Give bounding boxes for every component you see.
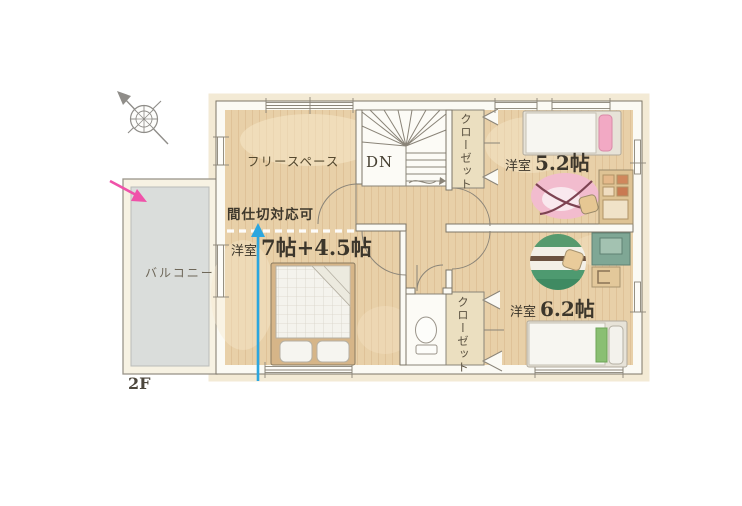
toilet-icon	[416, 317, 437, 343]
partition-note-label: 間仕切対応可	[227, 203, 314, 223]
bedroom-62-size: 6.2帖	[540, 293, 595, 322]
compass-icon	[117, 91, 168, 144]
stairs-down-label: DN	[366, 153, 393, 171]
stairwell	[362, 110, 446, 186]
bedroom-52-label: 洋室 5.2帖	[505, 147, 590, 176]
master-bedroom-name: 洋室	[231, 240, 257, 259]
floor-plan-page: フリースペース 間仕切対応可 洋室 7帖+4.5帖 洋室 5.2帖 洋室 6.2…	[0, 0, 742, 506]
bedroom-62-label: 洋室 6.2帖	[510, 293, 595, 322]
furniture-bed-62	[527, 321, 627, 367]
master-bedroom-label: 洋室 7帖+4.5帖	[231, 232, 372, 262]
bedroom-52-size: 5.2帖	[535, 147, 590, 176]
furniture-master-bed	[271, 263, 355, 365]
closet-south-label: クローゼット	[455, 296, 471, 374]
bedroom-52-name: 洋室	[505, 155, 531, 174]
balcony-label: バルコニー	[145, 264, 215, 281]
floor-number-label: 2F	[128, 374, 151, 393]
closet-north-label: クローゼット	[458, 113, 474, 191]
master-bedroom-size: 7帖+4.5帖	[261, 232, 372, 262]
toilet-room	[406, 294, 446, 365]
free-space-label: フリースペース	[247, 151, 339, 170]
bedroom-62-name: 洋室	[510, 301, 536, 320]
